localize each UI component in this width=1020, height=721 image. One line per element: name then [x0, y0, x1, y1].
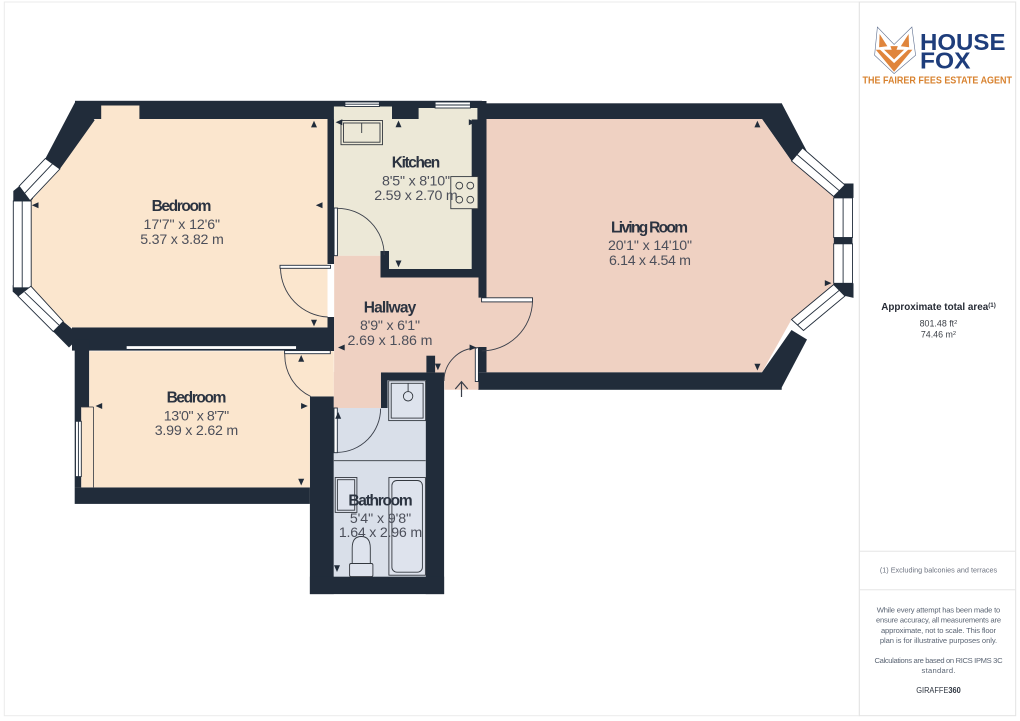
- svg-text:8'9" x 6'1": 8'9" x 6'1": [360, 318, 420, 334]
- svg-text:FOX: FOX: [920, 47, 971, 73]
- svg-text:6.14 x 4.54 m: 6.14 x 4.54 m: [609, 253, 691, 269]
- svg-text:17'7" x 12'6": 17'7" x 12'6": [144, 217, 221, 233]
- svg-text:801.48 ft2: 801.48 ft2: [920, 318, 958, 328]
- svg-text:Living Room: Living Room: [611, 219, 688, 236]
- svg-text:While every attempt has been m: While every attempt has been made to: [877, 605, 1001, 614]
- svg-text:THE FAIRER FEES ESTATE AGENT: THE FAIRER FEES ESTATE AGENT: [863, 75, 1013, 86]
- svg-text:Calculations are based on RICS: Calculations are based on RICS IPMS 3C: [874, 656, 1003, 665]
- svg-text:standard.: standard.: [922, 666, 956, 675]
- svg-text:Hallway: Hallway: [364, 299, 417, 316]
- svg-text:(1) Excluding balconies and te: (1) Excluding balconies and terraces: [880, 565, 997, 574]
- svg-text:1.64 x 2.96 m: 1.64 x 2.96 m: [339, 525, 422, 541]
- svg-text:plan is for illustrative purpo: plan is for illustrative purposes only.: [880, 636, 997, 645]
- svg-text:20'1" x 14'10": 20'1" x 14'10": [608, 238, 692, 254]
- svg-text:5.37 x 3.82 m: 5.37 x 3.82 m: [140, 232, 224, 248]
- svg-text:Bathroom: Bathroom: [348, 492, 412, 509]
- svg-text:Bedroom: Bedroom: [152, 198, 212, 215]
- svg-text:2.69 x 1.86 m: 2.69 x 1.86 m: [348, 333, 433, 349]
- svg-text:74.46 m2: 74.46 m2: [921, 330, 956, 340]
- svg-text:Kitchen: Kitchen: [392, 155, 440, 172]
- svg-text:ensure accuracy, all measureme: ensure accuracy, all measurements are: [876, 616, 1001, 625]
- svg-text:3.99 x 2.62 m: 3.99 x 2.62 m: [155, 423, 239, 439]
- svg-text:8'5" x 8'10": 8'5" x 8'10": [382, 173, 450, 189]
- svg-text:approximate, not to scale. Thi: approximate, not to scale. This floor: [881, 626, 997, 635]
- svg-text:Bedroom: Bedroom: [167, 390, 227, 407]
- svg-text:Approximate total area(1): Approximate total area(1): [881, 302, 996, 313]
- svg-text:2.59 x 2.70 m: 2.59 x 2.70 m: [374, 188, 458, 204]
- svg-text:13'0" x 8'7": 13'0" x 8'7": [164, 408, 229, 424]
- svg-text:GIRAFFE360: GIRAFFE360: [916, 686, 961, 695]
